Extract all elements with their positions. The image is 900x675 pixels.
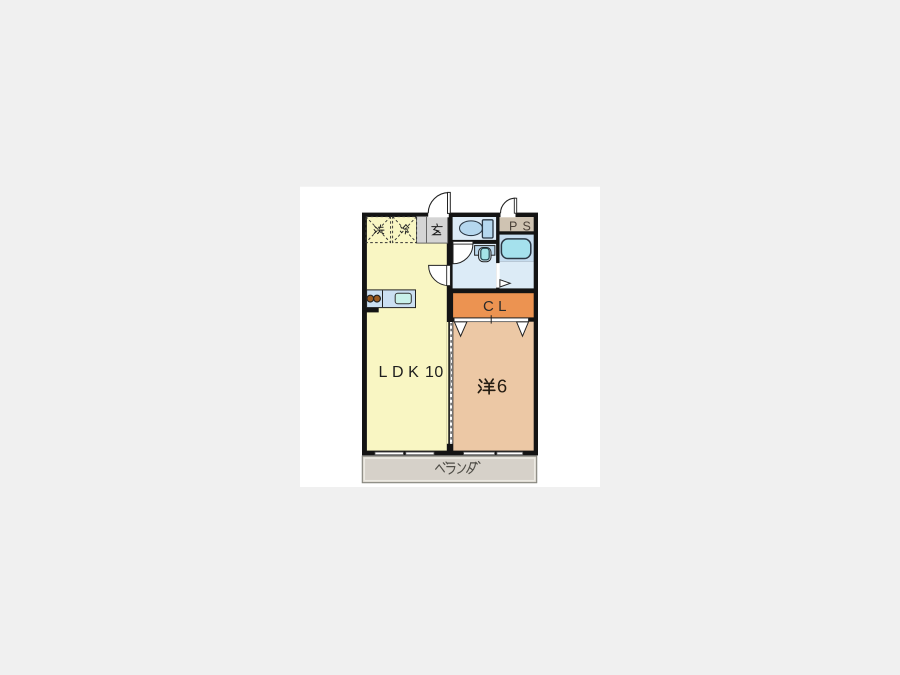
svg-text:PS: PS (509, 219, 536, 233)
svg-text:6: 6 (497, 376, 507, 397)
svg-text:CL: CL (483, 298, 511, 315)
svg-text:LDK10: LDK10 (379, 364, 444, 381)
